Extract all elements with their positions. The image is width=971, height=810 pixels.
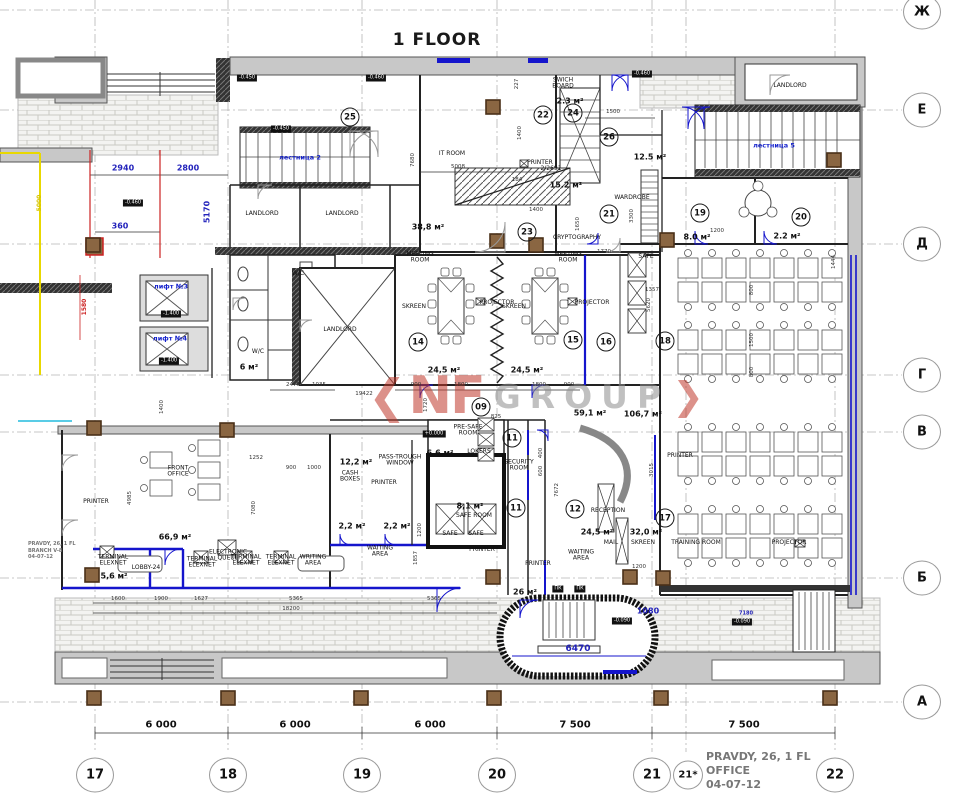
- room-number-bubble: 11: [503, 429, 522, 448]
- stamp-date: 04-07-12: [28, 554, 76, 561]
- room-number-bubble: 20: [792, 208, 811, 227]
- grid-axis-row-Д: Д: [903, 227, 941, 262]
- room-number-bubble: 22: [534, 106, 553, 125]
- room-number-bubble: 23: [518, 223, 537, 242]
- room-number-bubble: 19: [691, 204, 710, 223]
- stamp-address: PRAVDY, 26, 1 FL: [28, 541, 76, 548]
- room-number-bubble: 15: [564, 331, 583, 350]
- room-number-bubble: 25: [341, 108, 360, 127]
- grid-axis-col-21*: 21*: [673, 761, 703, 790]
- stamp-date: 04-07-12: [706, 778, 811, 792]
- grid-axis-col-17: 17: [76, 758, 114, 793]
- grid-axis-col-21: 21: [633, 758, 671, 793]
- stamp-type: OFFICE: [706, 764, 811, 778]
- grid-axis-row-Г: Г: [903, 358, 941, 393]
- grid-axis-col-18: 18: [209, 758, 247, 793]
- room-number-bubble: 12: [566, 500, 585, 519]
- room-number-bubble: 11: [507, 499, 526, 518]
- grid-axis-row-В: В: [903, 415, 941, 450]
- branch-stamp: PRAVDY, 26, 1 FL BRANCH V-8 04-07-12: [28, 541, 76, 561]
- grid-axis-col-19: 19: [343, 758, 381, 793]
- room-number-bubble: 17: [656, 509, 675, 528]
- grid-axis-col-22: 22: [816, 758, 854, 793]
- room-number-bubble: 26: [600, 128, 619, 147]
- grid-axis-col-20: 20: [478, 758, 516, 793]
- room-number-bubble: 09: [472, 398, 491, 417]
- room-number-bubble: 16: [597, 333, 616, 352]
- room-number-bubble: 24: [564, 104, 583, 123]
- stamp-address: PRAVDY, 26, 1 FL: [706, 750, 811, 764]
- grid-axis-row-А: А: [903, 685, 941, 720]
- title-stamp: PRAVDY, 26, 1 FL OFFICE 04-07-12: [706, 750, 811, 791]
- room-number-bubble: 14: [409, 333, 428, 352]
- grid-axis-row-Б: Б: [903, 561, 941, 596]
- room-number-bubble: 21: [600, 205, 619, 224]
- room-number-bubble: 18: [656, 332, 675, 351]
- grid-axis-row-Е: Е: [903, 93, 941, 128]
- floorplan-canvas: ❮ NF GROUP ❯ 1 FLOOR IT ROOMSWICH BOARDP…: [0, 0, 971, 810]
